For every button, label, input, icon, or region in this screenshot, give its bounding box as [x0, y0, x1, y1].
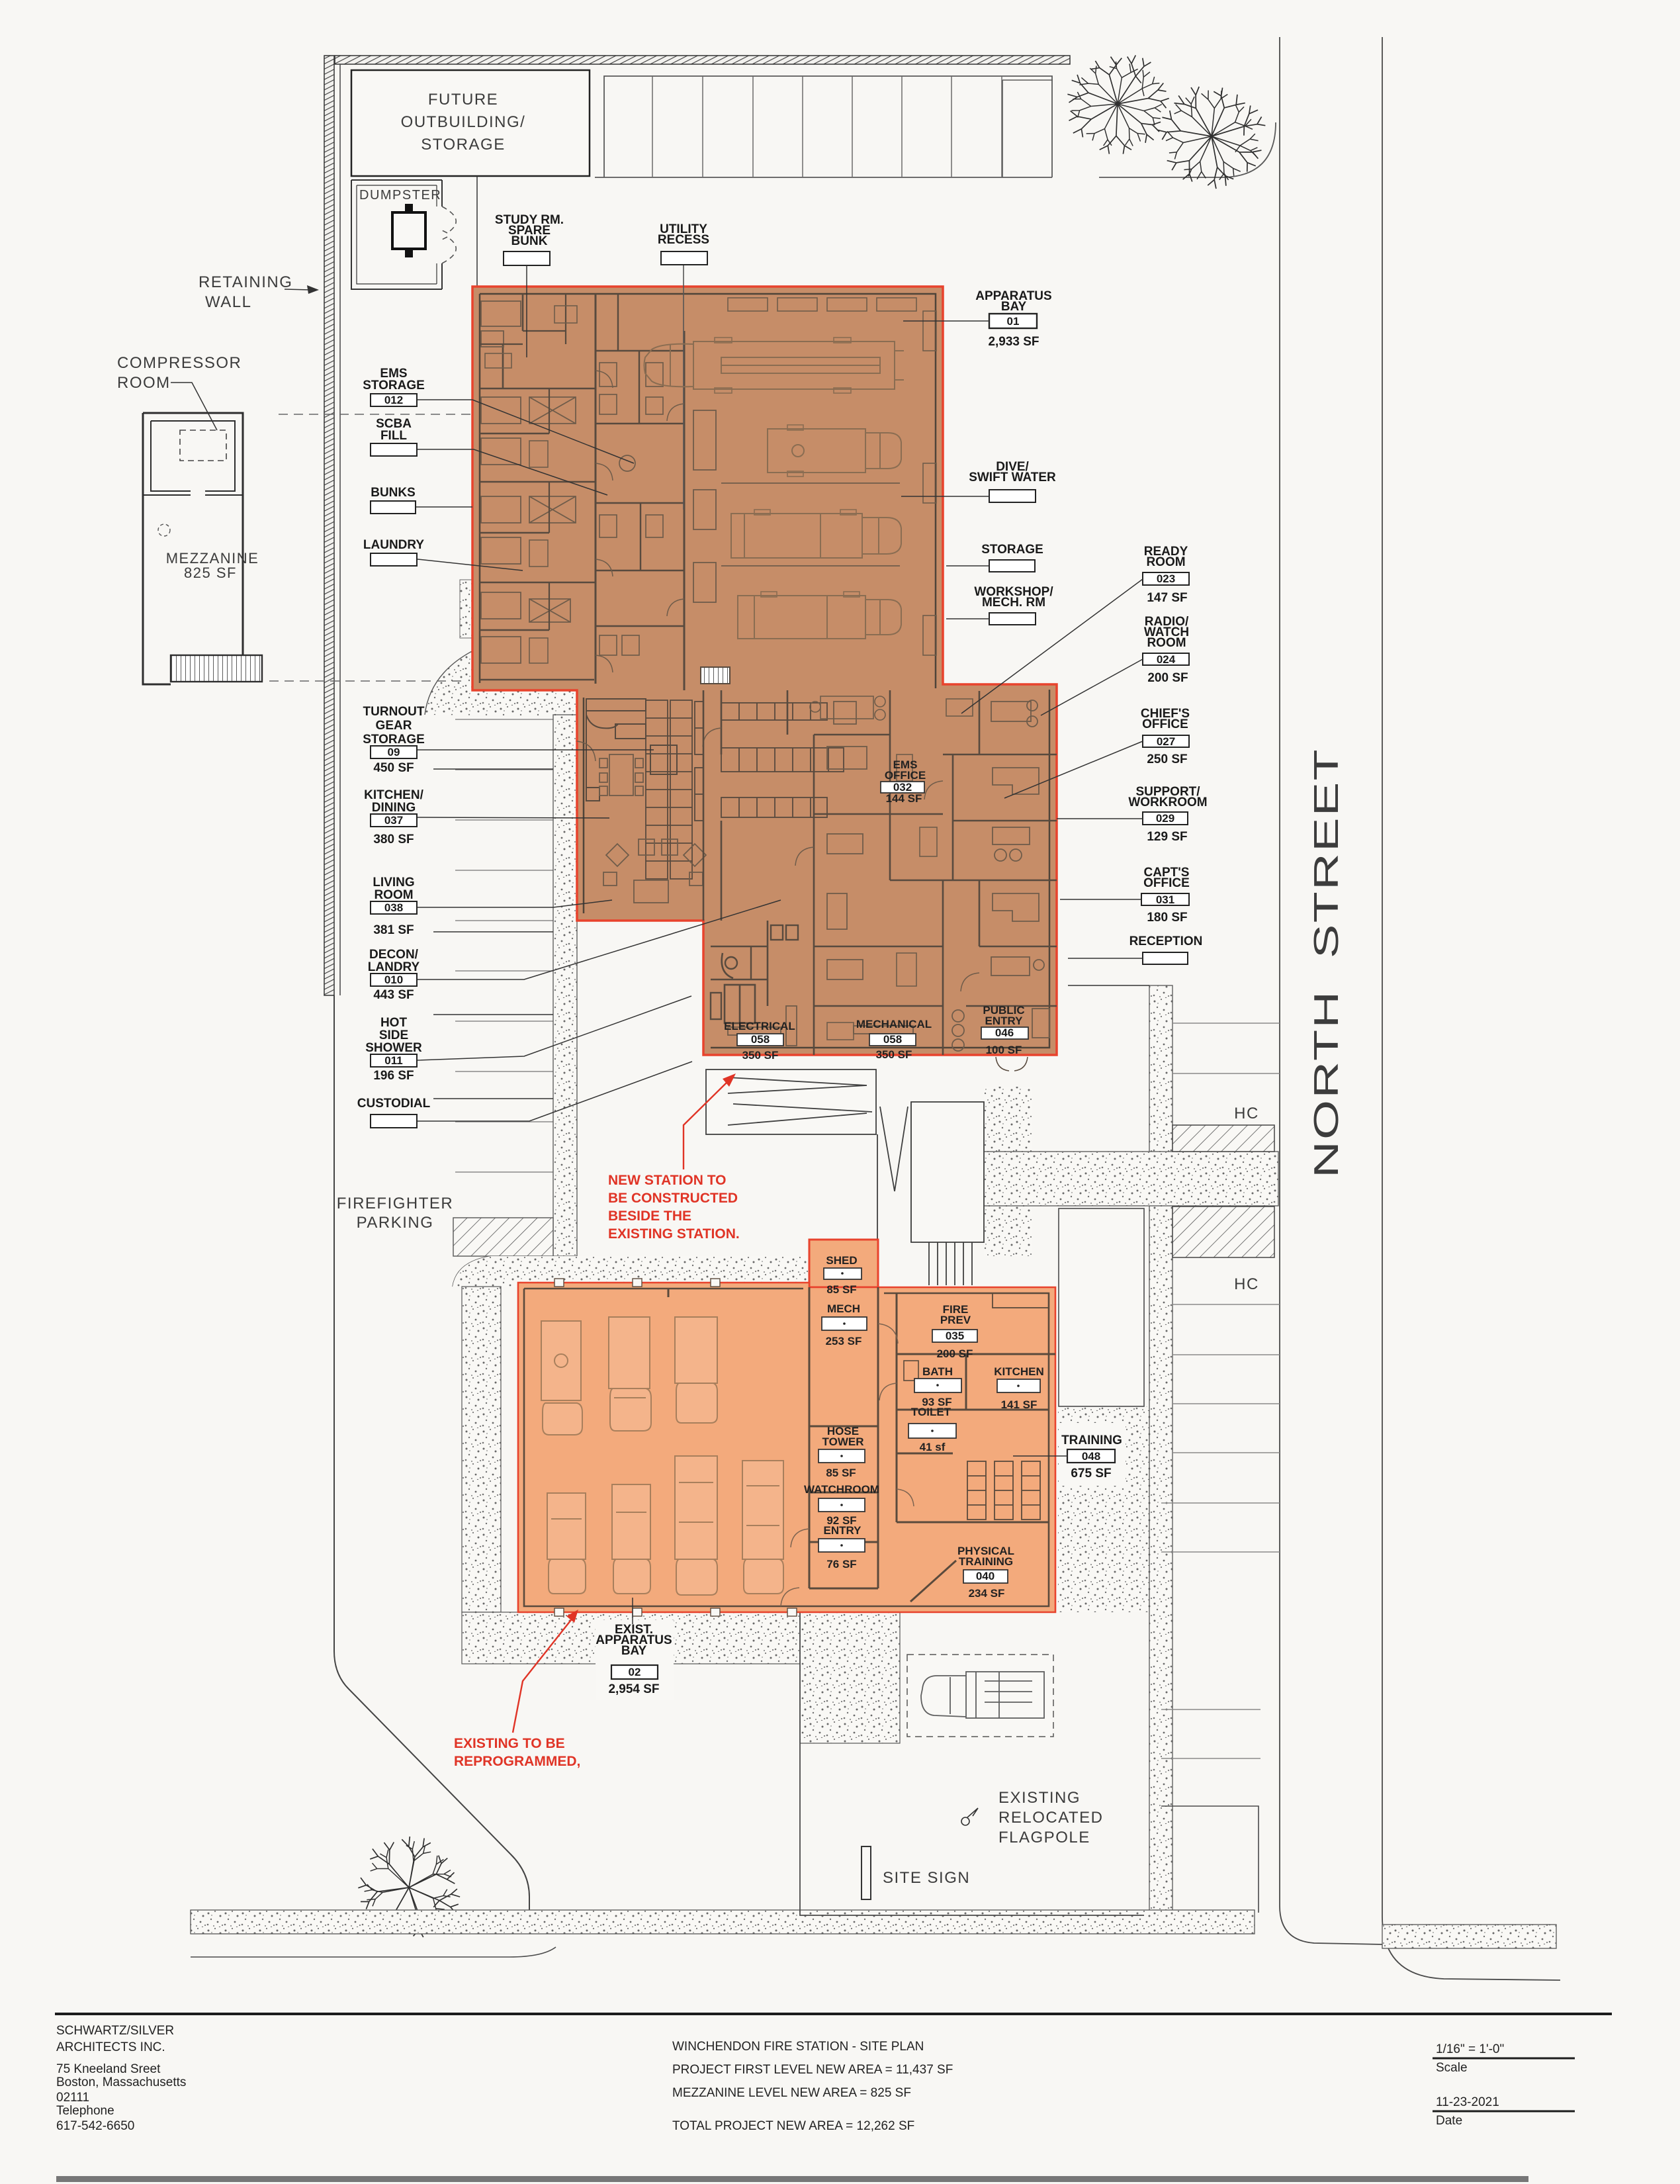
svg-text:EXISTING TO BE: EXISTING TO BE	[454, 1736, 565, 1751]
svg-text:141 SF: 141 SF	[1001, 1398, 1038, 1411]
svg-text:EXISTING STATION.: EXISTING STATION.	[608, 1226, 740, 1242]
svg-text:035: 035	[946, 1330, 964, 1342]
svg-text:ENTRY: ENTRY	[824, 1524, 862, 1537]
svg-text:WORKROOM: WORKROOM	[1128, 796, 1207, 809]
svg-text:012: 012	[384, 394, 403, 406]
svg-text:TRAINING: TRAINING	[1061, 1433, 1122, 1447]
svg-text:048: 048	[1082, 1450, 1100, 1463]
svg-text:040: 040	[976, 1570, 995, 1582]
svg-text:ROOM: ROOM	[1146, 555, 1185, 569]
svg-text:443 SF: 443 SF	[373, 988, 414, 1002]
svg-text:WALL: WALL	[205, 293, 251, 311]
svg-text:129 SF: 129 SF	[1147, 830, 1187, 844]
svg-text:11-23-2021: 11-23-2021	[1436, 2095, 1499, 2109]
svg-text:100 SF: 100 SF	[986, 1044, 1022, 1056]
svg-text:GEAR: GEAR	[376, 719, 412, 733]
svg-text:031: 031	[1156, 893, 1174, 906]
svg-text:STORAGE: STORAGE	[363, 733, 425, 747]
svg-text:MEZZANINE LEVEL NEW AREA = 825: MEZZANINE LEVEL NEW AREA = 825 SF	[672, 2086, 911, 2100]
svg-text:BAY: BAY	[621, 1644, 647, 1658]
svg-text:OFFICE: OFFICE	[1142, 717, 1188, 731]
svg-text:01: 01	[1007, 315, 1020, 328]
svg-text:75 Kneeland Sreet: 75 Kneeland Sreet	[56, 2062, 161, 2076]
svg-text:SCHWARTZ/SILVER: SCHWARTZ/SILVER	[56, 2024, 174, 2038]
svg-text:02111: 02111	[56, 2091, 89, 2105]
svg-text:DECON/: DECON/	[369, 948, 419, 962]
svg-text:TURNOUT: TURNOUT	[363, 705, 425, 719]
svg-text:Date: Date	[1436, 2114, 1462, 2128]
svg-text:DINING: DINING	[372, 801, 416, 815]
svg-text:046: 046	[995, 1026, 1014, 1039]
svg-text:381 SF: 381 SF	[373, 923, 414, 937]
svg-text:BAY: BAY	[1001, 300, 1027, 314]
svg-text:BE CONSTRUCTED: BE CONSTRUCTED	[608, 1191, 738, 1206]
svg-text:OUTBUILDING/: OUTBUILDING/	[401, 113, 526, 131]
svg-text:253 SF: 253 SF	[826, 1335, 862, 1347]
svg-text:BATH: BATH	[922, 1365, 953, 1378]
svg-text:FLAGPOLE: FLAGPOLE	[998, 1829, 1090, 1846]
svg-text:76 SF: 76 SF	[826, 1558, 856, 1570]
svg-text:180 SF: 180 SF	[1147, 911, 1187, 925]
svg-text:MECHANICAL: MECHANICAL	[856, 1018, 932, 1030]
svg-text:PREV: PREV	[940, 1314, 971, 1326]
svg-text:85 SF: 85 SF	[826, 1467, 856, 1479]
svg-text:WINCHENDON FIRE STATION - SITE: WINCHENDON FIRE STATION - SITE PLAN	[672, 2040, 924, 2054]
svg-text:KITCHEN/: KITCHEN/	[364, 788, 423, 802]
svg-text:NEW STATION TO: NEW STATION TO	[608, 1173, 727, 1188]
svg-text:RECESS: RECESS	[658, 233, 709, 247]
svg-text:144 SF: 144 SF	[886, 792, 922, 805]
svg-text:SHOWER: SHOWER	[365, 1041, 422, 1055]
svg-text:OFFICE: OFFICE	[885, 769, 926, 782]
svg-text:SITE SIGN: SITE SIGN	[883, 1869, 970, 1887]
svg-text:023: 023	[1157, 572, 1175, 585]
svg-text:HOT: HOT	[380, 1016, 408, 1030]
svg-text:380 SF: 380 SF	[373, 833, 414, 846]
svg-text:02: 02	[629, 1666, 641, 1678]
svg-text:675 SF: 675 SF	[1071, 1467, 1111, 1480]
svg-text:058: 058	[751, 1033, 770, 1046]
svg-text:TOWER: TOWER	[822, 1435, 864, 1448]
svg-text:PARKING: PARKING	[357, 1214, 434, 1232]
svg-text:STORAGE: STORAGE	[421, 136, 505, 154]
svg-text:250 SF: 250 SF	[1147, 752, 1187, 766]
svg-text:DUMPSTER: DUMPSTER	[359, 188, 441, 203]
svg-text:350 SF: 350 SF	[742, 1049, 779, 1062]
svg-text:SWIFT WATER: SWIFT WATER	[969, 471, 1056, 484]
svg-text:TOILET: TOILET	[911, 1406, 951, 1418]
svg-text:029: 029	[1156, 812, 1174, 825]
svg-text:058: 058	[883, 1033, 902, 1046]
svg-text:RECEPTION: RECEPTION	[1129, 934, 1203, 948]
svg-text:Scale: Scale	[1436, 2061, 1468, 2075]
svg-text:038: 038	[384, 901, 403, 914]
svg-text:COMPRESSOR: COMPRESSOR	[117, 354, 242, 372]
svg-text:617-542-6650: 617-542-6650	[56, 2119, 134, 2133]
svg-text:PROJECT FIRST LEVEL NEW AREA =: PROJECT FIRST LEVEL NEW AREA = 11,437 SF	[672, 2063, 953, 2077]
svg-text:BUNKS: BUNKS	[371, 486, 416, 500]
svg-text:HC: HC	[1234, 1275, 1259, 1293]
svg-text:EXISTING: EXISTING	[998, 1789, 1081, 1807]
svg-text:LIVING: LIVING	[373, 876, 414, 889]
svg-text:FILL: FILL	[380, 429, 407, 443]
svg-text:037: 037	[384, 814, 403, 827]
svg-text:85 SF: 85 SF	[826, 1283, 856, 1296]
svg-text:MECH: MECH	[827, 1302, 860, 1315]
svg-text:147 SF: 147 SF	[1147, 591, 1187, 605]
svg-text:SIDE: SIDE	[379, 1028, 408, 1042]
svg-text:010: 010	[384, 974, 403, 986]
svg-text:FIREFIGHTER: FIREFIGHTER	[337, 1195, 454, 1212]
svg-text:350 SF: 350 SF	[876, 1048, 912, 1061]
svg-text:LANDRY: LANDRY	[368, 960, 420, 974]
svg-text:ELECTRICAL: ELECTRICAL	[724, 1020, 795, 1032]
svg-text:ARCHITECTS INC.: ARCHITECTS INC.	[56, 2040, 165, 2054]
svg-text:FUTURE: FUTURE	[428, 91, 498, 109]
svg-text:234 SF: 234 SF	[969, 1587, 1005, 1600]
svg-text:196 SF: 196 SF	[373, 1069, 414, 1083]
svg-text:RELOCATED: RELOCATED	[998, 1809, 1103, 1827]
svg-text:RETAINING: RETAINING	[199, 273, 292, 291]
svg-text:825 SF: 825 SF	[184, 565, 237, 581]
svg-text:ROOM: ROOM	[117, 374, 171, 392]
svg-text:ROOM: ROOM	[374, 888, 413, 902]
svg-text:200 SF: 200 SF	[1147, 671, 1188, 685]
svg-text:Boston, Massachusetts: Boston, Massachusetts	[56, 2075, 186, 2089]
svg-text:2,933 SF: 2,933 SF	[988, 335, 1039, 349]
svg-text:011: 011	[384, 1054, 402, 1067]
svg-text:41 sf: 41 sf	[920, 1441, 946, 1453]
svg-text:SHED: SHED	[826, 1254, 857, 1267]
svg-text:LAUNDRY: LAUNDRY	[363, 538, 425, 552]
svg-text:BUNK: BUNK	[511, 234, 548, 248]
svg-text:027: 027	[1157, 735, 1175, 748]
svg-text:Telephone: Telephone	[56, 2104, 114, 2118]
svg-text:024: 024	[1157, 653, 1176, 666]
svg-text:ROOM: ROOM	[1147, 636, 1186, 650]
svg-text:STORAGE: STORAGE	[981, 543, 1043, 557]
svg-text:TRAINING: TRAINING	[959, 1555, 1013, 1568]
svg-text:ENTRY: ENTRY	[985, 1015, 1024, 1027]
svg-text:2,954 SF: 2,954 SF	[608, 1682, 659, 1696]
svg-text:200 SF: 200 SF	[937, 1347, 973, 1360]
svg-text:BESIDE THE: BESIDE THE	[608, 1208, 691, 1224]
svg-text:WATCHROOM: WATCHROOM	[804, 1483, 879, 1496]
svg-text:HC: HC	[1234, 1105, 1259, 1122]
svg-text:CUSTODIAL: CUSTODIAL	[357, 1097, 431, 1111]
svg-text:STORAGE: STORAGE	[363, 379, 425, 392]
svg-text:09: 09	[388, 746, 400, 758]
svg-text:1/16" = 1'-0": 1/16" = 1'-0"	[1436, 2042, 1504, 2056]
svg-text:MECH. RM: MECH. RM	[982, 596, 1045, 610]
svg-text:KITCHEN: KITCHEN	[994, 1365, 1044, 1378]
svg-text:TOTAL PROJECT NEW AREA = 12,2: TOTAL PROJECT NEW AREA = 12,262 SF	[672, 2119, 914, 2133]
svg-text:450 SF: 450 SF	[373, 761, 414, 775]
svg-text:REPROGRAMMED,: REPROGRAMMED,	[454, 1754, 580, 1769]
svg-text:NORTH STREET: NORTH STREET	[1307, 748, 1346, 1178]
svg-text:OFFICE: OFFICE	[1143, 876, 1190, 890]
